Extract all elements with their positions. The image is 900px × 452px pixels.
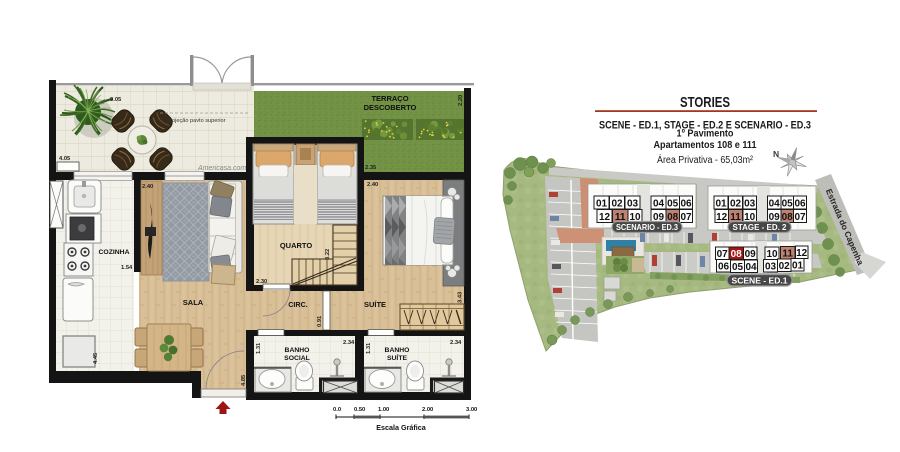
svg-text:03: 03 bbox=[744, 199, 756, 210]
svg-text:2.00: 2.00 bbox=[422, 407, 433, 413]
svg-text:0.50: 0.50 bbox=[354, 407, 365, 413]
svg-text:2.40: 2.40 bbox=[367, 182, 378, 188]
svg-text:Escala Gráfica: Escala Gráfica bbox=[376, 423, 427, 432]
svg-text:05: 05 bbox=[667, 199, 679, 210]
svg-text:09: 09 bbox=[745, 249, 757, 260]
svg-text:STORIES: STORIES bbox=[680, 94, 730, 111]
svg-text:3.22: 3.22 bbox=[325, 249, 331, 260]
svg-text:QUARTO: QUARTO bbox=[280, 241, 313, 250]
svg-text:0.91: 0.91 bbox=[317, 315, 323, 327]
svg-text:SUÍTE: SUÍTE bbox=[364, 300, 386, 309]
svg-text:9.05: 9.05 bbox=[110, 97, 122, 103]
svg-text:SALA: SALA bbox=[183, 298, 204, 307]
svg-text:3.00: 3.00 bbox=[466, 407, 477, 413]
svg-text:02: 02 bbox=[779, 261, 791, 272]
svg-text:03: 03 bbox=[765, 262, 777, 273]
svg-text:1.31: 1.31 bbox=[256, 342, 262, 354]
svg-text:SOCIAL: SOCIAL bbox=[284, 355, 310, 362]
svg-text:BANHO: BANHO bbox=[285, 347, 310, 354]
svg-text:03: 03 bbox=[627, 199, 639, 210]
svg-text:07: 07 bbox=[680, 212, 692, 223]
svg-text:SCENARIO - ED.3: SCENARIO - ED.3 bbox=[616, 222, 678, 232]
svg-text:2.30: 2.30 bbox=[256, 279, 267, 285]
svg-text:10: 10 bbox=[766, 249, 778, 260]
svg-text:02: 02 bbox=[611, 199, 623, 210]
svg-text:07: 07 bbox=[717, 249, 729, 260]
svg-text:06: 06 bbox=[680, 199, 692, 210]
svg-text:07: 07 bbox=[794, 212, 806, 223]
svg-text:02: 02 bbox=[730, 199, 742, 210]
svg-text:Área Privativa - 65,03m²: Área Privativa - 65,03m² bbox=[657, 153, 754, 166]
svg-text:COZINHA: COZINHA bbox=[99, 249, 130, 256]
svg-text:01: 01 bbox=[596, 199, 608, 210]
svg-text:05: 05 bbox=[732, 262, 744, 273]
svg-text:STAGE - ED. 2: STAGE - ED. 2 bbox=[733, 222, 787, 232]
svg-text:05: 05 bbox=[782, 199, 794, 210]
svg-text:12: 12 bbox=[796, 248, 808, 259]
svg-text:SUÍTE: SUÍTE bbox=[387, 353, 407, 362]
svg-text:2.40: 2.40 bbox=[142, 184, 153, 190]
svg-text:04: 04 bbox=[653, 199, 665, 210]
svg-text:3.43: 3.43 bbox=[458, 291, 464, 303]
svg-text:4.45: 4.45 bbox=[93, 352, 99, 364]
svg-text:1.54: 1.54 bbox=[121, 265, 133, 271]
svg-text:06: 06 bbox=[794, 199, 806, 210]
svg-text:BANHO: BANHO bbox=[385, 347, 410, 354]
svg-text:2.34: 2.34 bbox=[343, 340, 355, 346]
svg-text:04: 04 bbox=[745, 262, 757, 273]
svg-text:01: 01 bbox=[792, 261, 804, 272]
svg-text:4.05: 4.05 bbox=[59, 156, 71, 162]
svg-text:Americasa.com: Americasa.com bbox=[197, 165, 246, 172]
svg-text:2.20: 2.20 bbox=[458, 95, 464, 106]
svg-text:12: 12 bbox=[599, 212, 611, 223]
svg-text:01: 01 bbox=[715, 199, 727, 210]
svg-text:2.35: 2.35 bbox=[365, 165, 377, 171]
svg-text:1.00: 1.00 bbox=[378, 407, 389, 413]
svg-text:TERRAÇO: TERRAÇO bbox=[371, 94, 408, 103]
svg-text:04: 04 bbox=[769, 199, 781, 210]
svg-text:11: 11 bbox=[782, 249, 793, 260]
svg-text:N: N bbox=[773, 149, 779, 159]
svg-text:2.34: 2.34 bbox=[450, 340, 462, 346]
svg-text:4.85: 4.85 bbox=[241, 374, 247, 386]
svg-text:1.31: 1.31 bbox=[366, 342, 372, 354]
svg-text:SCENE - ED.1: SCENE - ED.1 bbox=[732, 276, 788, 286]
svg-text:08: 08 bbox=[731, 249, 743, 260]
svg-text:projeção pavto superior: projeção pavto superior bbox=[167, 118, 226, 124]
svg-text:Apartamentos 108 e 111: Apartamentos 108 e 111 bbox=[654, 139, 757, 151]
svg-text:12: 12 bbox=[716, 212, 728, 223]
svg-text:1º Pavimento: 1º Pavimento bbox=[677, 128, 734, 140]
svg-text:0.0: 0.0 bbox=[333, 407, 341, 413]
svg-text:06: 06 bbox=[718, 262, 730, 273]
svg-text:CIRC.: CIRC. bbox=[288, 300, 308, 309]
svg-text:DESCOBERTO: DESCOBERTO bbox=[364, 103, 417, 112]
